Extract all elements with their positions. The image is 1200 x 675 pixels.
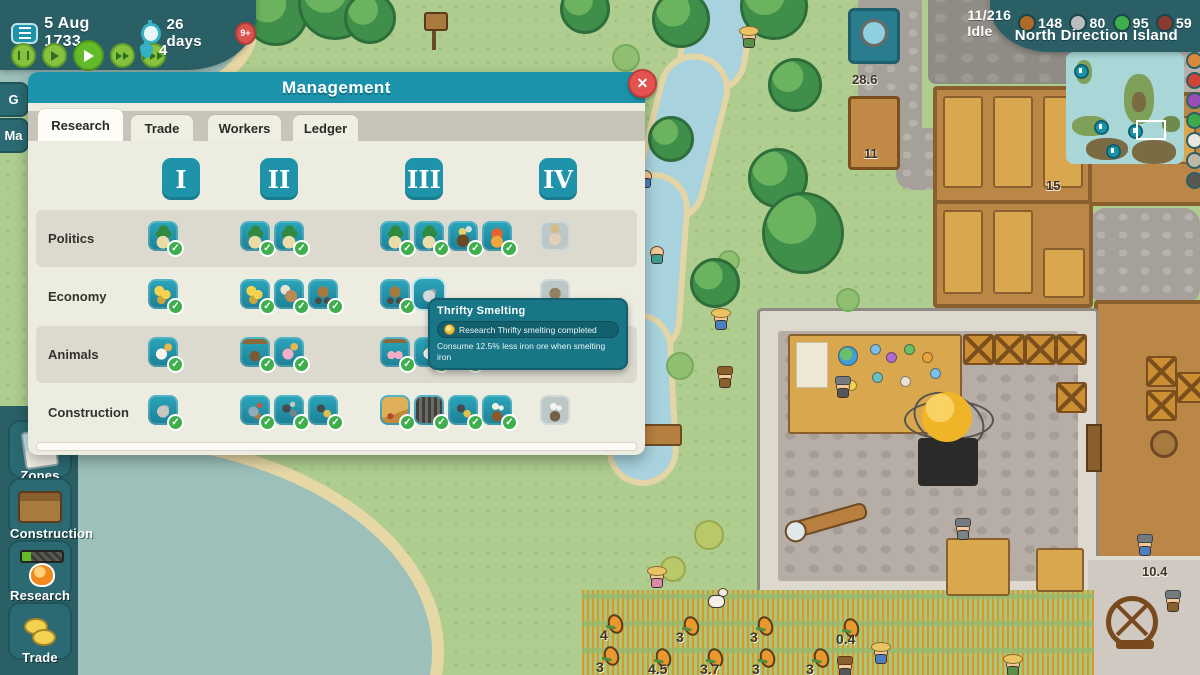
ship-icon <box>484 397 510 423</box>
crop-count: 3 <box>806 661 814 675</box>
filter-plant-button[interactable] <box>1186 112 1200 129</box>
villager <box>834 376 850 398</box>
orrery-base <box>918 438 978 486</box>
tech-tooltip: Thrifty Smelting Research Thrifty smelti… <box>428 298 628 370</box>
minimap[interactable] <box>1066 52 1184 164</box>
crop-marker: 3 <box>676 616 706 646</box>
crop-count: 3 <box>596 659 604 675</box>
island-tech[interactable] <box>414 221 444 251</box>
corn-icon <box>601 644 621 668</box>
dry-bush <box>694 520 724 550</box>
villager <box>648 242 664 264</box>
sidebar-label: Trade <box>10 650 70 665</box>
treasure-tech[interactable] <box>448 221 478 251</box>
cart-icon <box>382 281 408 307</box>
body <box>1167 602 1179 612</box>
crop-marker: 0.4 <box>836 618 866 648</box>
crate <box>1146 356 1177 387</box>
island-icon <box>242 223 268 249</box>
play-icon <box>51 51 59 61</box>
tab-trade[interactable]: Trade <box>131 115 193 141</box>
body <box>1139 546 1151 556</box>
island-tech[interactable] <box>148 221 178 251</box>
hamburger-icon <box>19 27 31 39</box>
sawmill-tech[interactable] <box>274 279 304 309</box>
chicken-icon <box>150 339 176 365</box>
crop-count: 4.5 <box>648 661 667 675</box>
crop-marker: 3 <box>752 648 782 675</box>
villager <box>954 518 970 540</box>
barrel <box>1150 430 1178 458</box>
resource-iron-value: 59 <box>1176 15 1192 31</box>
research-flask-icon <box>140 44 153 58</box>
pigs-icon <box>382 339 408 365</box>
villager <box>740 26 756 48</box>
bush <box>666 352 694 380</box>
idle-counter: 11/216 Idle <box>967 7 1011 39</box>
minimap-island <box>1132 92 1146 112</box>
crop-marker: 3 <box>750 616 780 646</box>
crate <box>1056 382 1087 413</box>
galleon-tech[interactable] <box>540 395 570 425</box>
beaker <box>922 352 933 363</box>
beaker <box>872 372 883 383</box>
globe <box>838 346 858 366</box>
table <box>943 96 983 188</box>
villager <box>712 308 728 330</box>
gear-hammer-tech[interactable] <box>274 395 304 425</box>
body <box>1007 666 1019 675</box>
chicken-tech[interactable] <box>148 337 178 367</box>
pig-tech[interactable] <box>274 337 304 367</box>
filter-food-button[interactable] <box>1186 52 1200 69</box>
fence-icon <box>416 397 442 423</box>
body <box>708 595 725 608</box>
gem-icon <box>29 563 55 587</box>
cart-icon <box>310 281 336 307</box>
close-button[interactable]: ✕ <box>628 69 657 98</box>
island-tech[interactable] <box>274 221 304 251</box>
crop-marker: 4.5 <box>648 648 678 675</box>
tab-research[interactable]: Research <box>38 109 123 141</box>
sidebar-label: Construction <box>10 526 70 541</box>
world-count-label: 28.6 <box>852 72 877 87</box>
body <box>719 378 731 388</box>
hat <box>955 518 971 527</box>
notification-badge[interactable]: 9+ <box>235 22 256 45</box>
villager <box>872 642 888 664</box>
filter-apple-button[interactable] <box>1186 72 1200 89</box>
storage-room <box>1094 300 1200 570</box>
cart-tech[interactable] <box>380 279 410 309</box>
hat <box>1003 654 1023 664</box>
gears-icon <box>450 397 476 423</box>
tier-IV: IV <box>539 158 577 200</box>
flask-progress-icon <box>20 550 60 588</box>
minimap-filter-buttons <box>1186 52 1200 192</box>
corn-icon <box>755 614 775 638</box>
panel-title: Management <box>282 78 391 98</box>
island-icon <box>382 223 408 249</box>
body <box>651 578 663 588</box>
sidebar-label: Research <box>10 588 70 603</box>
orrery-sun <box>922 392 972 442</box>
island-name: North Direction Island <box>1015 27 1178 44</box>
tab-strip: ResearchTradeWorkersLedger <box>28 111 645 141</box>
body <box>715 320 727 330</box>
villager <box>836 656 852 675</box>
sheep <box>708 586 724 608</box>
beaker <box>870 344 881 355</box>
bush <box>836 288 860 312</box>
crop-marker: 4 <box>600 614 630 644</box>
tab-ledger[interactable]: Ledger <box>293 115 358 141</box>
side-table <box>1036 548 1084 592</box>
tree <box>648 116 694 162</box>
top-right-hud: 11/216 Idle 148809559 North Direction Is… <box>990 0 1200 52</box>
minimap-island <box>1132 140 1176 164</box>
crop-count: 3 <box>752 661 760 675</box>
tier-III: III <box>405 158 443 200</box>
hat <box>1165 590 1181 599</box>
panel-header: Management <box>28 72 645 103</box>
speed-fast-forward-button[interactable] <box>110 43 135 68</box>
gears-tech[interactable] <box>448 395 478 425</box>
body <box>839 668 851 675</box>
crate <box>994 334 1025 365</box>
pause-icon <box>18 51 29 60</box>
filter-coal-button[interactable] <box>1186 172 1200 189</box>
crop-marker: 3.7 <box>700 648 730 675</box>
research-points: 4 <box>159 42 168 59</box>
hidden-menu-tab[interactable]: Ma <box>0 118 29 153</box>
speed-play-slow-button[interactable] <box>42 43 67 68</box>
hat <box>711 308 731 318</box>
hat <box>837 656 853 665</box>
tree <box>690 258 740 308</box>
villager <box>1136 534 1152 556</box>
villager <box>648 566 664 588</box>
crop-marker: 3 <box>596 646 626 675</box>
beaker <box>900 376 911 387</box>
table <box>993 210 1033 294</box>
tooltip-status: Research Thrifty smelting completed <box>437 321 619 338</box>
signpost <box>424 12 444 50</box>
bush <box>612 44 640 72</box>
lab-door <box>1086 424 1102 472</box>
coins-icon <box>22 616 58 646</box>
fast-forward-icon <box>123 52 129 60</box>
map-paper <box>796 342 828 388</box>
island-icon <box>150 223 176 249</box>
world-count-label: 11 <box>864 146 878 161</box>
island-tech[interactable] <box>240 221 270 251</box>
tree <box>768 58 822 112</box>
filter-limestone-button[interactable] <box>1186 132 1200 149</box>
stone-path <box>1090 208 1200 304</box>
tier-I: I <box>162 158 200 200</box>
research-coin-icon <box>444 324 455 335</box>
filter-stone-button[interactable] <box>1186 152 1200 169</box>
stone-tech[interactable] <box>148 395 178 425</box>
world-count-label: 15 <box>1046 178 1060 193</box>
workbench-tech[interactable] <box>240 395 270 425</box>
body <box>957 530 969 540</box>
crate <box>1056 334 1087 365</box>
ship-tech[interactable] <box>482 395 512 425</box>
minimap-marker <box>1094 120 1109 135</box>
beaker <box>930 368 941 379</box>
row-label: Politics <box>48 231 94 246</box>
crop-count: 3 <box>750 629 758 645</box>
island-icon <box>276 223 302 249</box>
body <box>875 654 887 664</box>
well <box>848 8 900 64</box>
villager <box>1164 590 1180 612</box>
wheel-base <box>1116 640 1154 649</box>
play-icon <box>84 50 94 62</box>
island-icon <box>416 223 442 249</box>
pen-icon <box>242 339 268 365</box>
row-label: Animals <box>48 347 99 362</box>
beaker <box>886 352 897 363</box>
fast-forward-icon <box>116 52 122 60</box>
world-count-label: 10.4 <box>1142 564 1167 579</box>
tree <box>762 192 844 274</box>
coins-tech[interactable] <box>240 279 270 309</box>
minimap-marker <box>1106 144 1121 159</box>
corn-icon <box>681 614 701 638</box>
tooltip-title: Thrifty Smelting <box>437 305 619 317</box>
coins-icon <box>242 281 268 307</box>
villager <box>1004 654 1020 675</box>
cart-tech[interactable] <box>308 279 338 309</box>
crop-count: 3 <box>676 629 684 645</box>
bench-icon <box>242 397 268 423</box>
plank-icon <box>382 397 408 423</box>
plank-tech[interactable] <box>380 395 410 425</box>
livestock-pen-tech[interactable] <box>240 337 270 367</box>
crop-count: 3.7 <box>700 661 719 675</box>
hat <box>647 566 667 576</box>
management-panel: Management ✕ ResearchTradeWorkersLedger … <box>28 72 645 455</box>
body <box>743 38 755 48</box>
island-tech[interactable] <box>380 221 410 251</box>
tier-II: II <box>260 158 298 200</box>
table <box>993 96 1033 188</box>
crop-marker: 3 <box>806 648 836 675</box>
sidebar-research-button[interactable]: Research <box>8 540 72 598</box>
pig-icon <box>276 339 302 365</box>
saw-icon <box>276 281 302 307</box>
pig-breeding-tech[interactable] <box>380 337 410 367</box>
villager <box>716 366 732 388</box>
crop-count: 4 <box>600 627 608 643</box>
tooltip-description: Consume 12.5% less iron ore when smeltin… <box>437 341 619 362</box>
row-label: Construction <box>48 405 129 420</box>
foundation-icon <box>18 491 62 523</box>
hat <box>871 642 891 652</box>
hat <box>739 26 759 36</box>
monarch-icon <box>542 223 568 249</box>
beaker <box>904 344 915 355</box>
sidebar-trade-button[interactable]: Trade <box>8 602 72 660</box>
fire-icon <box>484 223 510 249</box>
speed-play-button[interactable] <box>73 40 104 71</box>
scholar-desk <box>946 538 1010 596</box>
game-screen: 28.6111510.44330.434.53.733 ZonesConstru… <box>0 0 1200 675</box>
minimap-viewport <box>1136 120 1166 140</box>
fire-tech[interactable] <box>482 221 512 251</box>
stone-icon <box>150 397 176 423</box>
progress-bar <box>20 550 64 563</box>
gears-icon <box>310 397 336 423</box>
coins-icon <box>150 281 176 307</box>
treasure-icon <box>450 223 476 249</box>
gearhammer-icon <box>276 397 302 423</box>
sidebar-construction-button[interactable]: Construction <box>8 478 72 536</box>
row-label: Economy <box>48 289 107 304</box>
crate <box>1176 372 1200 403</box>
galleon-icon <box>542 397 568 423</box>
horizontal-scrollbar[interactable] <box>36 442 637 451</box>
filter-berries-button[interactable] <box>1186 92 1200 109</box>
gears-tech[interactable] <box>308 395 338 425</box>
monarch-tech[interactable] <box>540 221 570 251</box>
table <box>943 210 983 294</box>
body <box>837 388 849 398</box>
tab-workers[interactable]: Workers <box>208 115 281 141</box>
corn-icon <box>757 646 777 670</box>
crop-count: 0.4 <box>836 631 855 647</box>
corn-icon <box>605 612 625 636</box>
crate <box>963 334 994 365</box>
hat <box>717 366 733 375</box>
crate <box>1025 334 1056 365</box>
hidden-menu-tab[interactable]: G <box>0 82 29 117</box>
hat <box>835 376 851 385</box>
hat <box>1137 534 1153 543</box>
day-counter: 26 days <box>167 16 218 50</box>
speed-pause-button[interactable] <box>11 43 36 68</box>
coins-tech[interactable] <box>148 279 178 309</box>
corn-icon <box>811 646 831 670</box>
fence-tech[interactable] <box>414 395 444 425</box>
body <box>651 254 663 264</box>
minimap-marker <box>1074 64 1089 79</box>
crate <box>1146 390 1177 421</box>
table <box>1043 248 1085 298</box>
top-left-hud: 5 Aug 1733 26 days 9+ 4 <box>0 0 256 70</box>
